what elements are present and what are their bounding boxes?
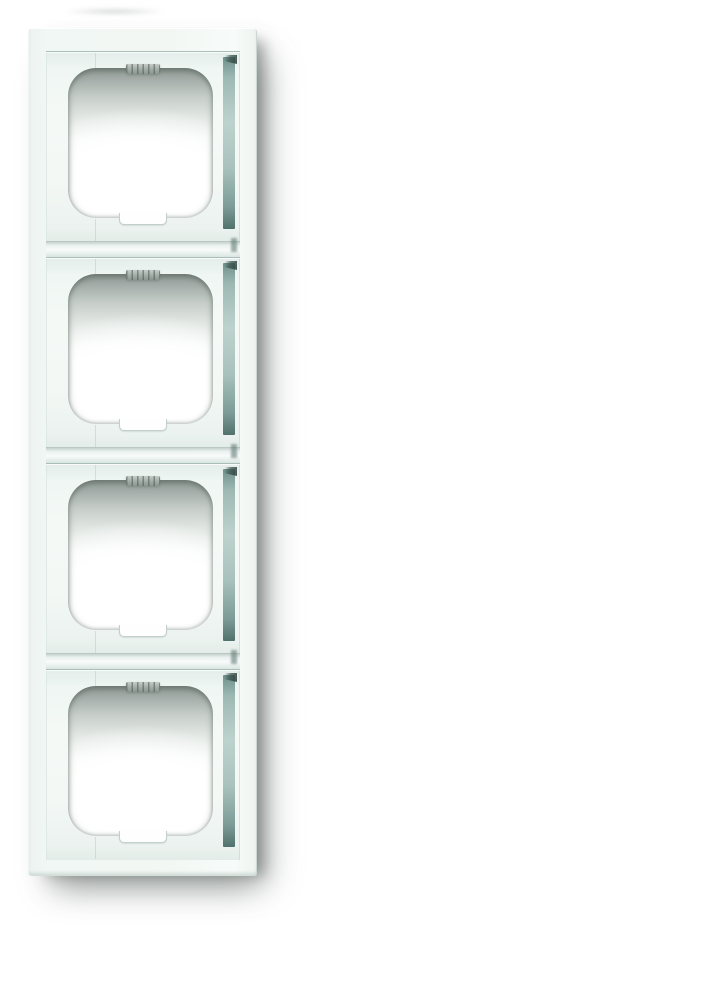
gang-opening	[68, 686, 213, 836]
gang-divider-groove	[46, 241, 240, 257]
side-shade-band	[223, 469, 235, 641]
gang-opening	[68, 274, 213, 424]
gang-divider-groove	[46, 447, 240, 463]
product-photo-canvas	[0, 0, 709, 982]
mold-seam-line	[95, 425, 96, 447]
mold-seam-line	[95, 671, 96, 686]
cover-frame	[28, 28, 257, 876]
gang-plateau	[46, 257, 240, 448]
fixing-clip-tab	[126, 476, 160, 486]
top-shadow-smudge	[55, 7, 187, 16]
mold-seam-line	[95, 259, 96, 274]
fixing-clip-tab	[126, 270, 160, 280]
mold-seam-line	[95, 219, 96, 241]
side-shade-band	[223, 675, 235, 847]
side-shade-band	[223, 263, 235, 435]
gang-opening	[68, 68, 213, 218]
fixing-clip-tab	[126, 682, 160, 692]
fixing-clip-tab	[126, 64, 160, 74]
bottom-notch	[119, 419, 167, 431]
gang-opening	[68, 480, 213, 630]
gang-plateau	[46, 463, 240, 654]
bottom-notch	[119, 625, 167, 637]
mold-seam-line	[95, 631, 96, 653]
side-shade-band	[223, 57, 235, 229]
mold-seam-line	[95, 465, 96, 480]
gang-divider-groove	[46, 653, 240, 669]
mold-seam-line	[95, 53, 96, 68]
gang-plateau	[46, 669, 240, 860]
mold-seam-line	[95, 837, 96, 859]
gang-plateau	[46, 51, 240, 242]
bottom-notch	[119, 831, 167, 843]
bottom-notch	[119, 213, 167, 225]
